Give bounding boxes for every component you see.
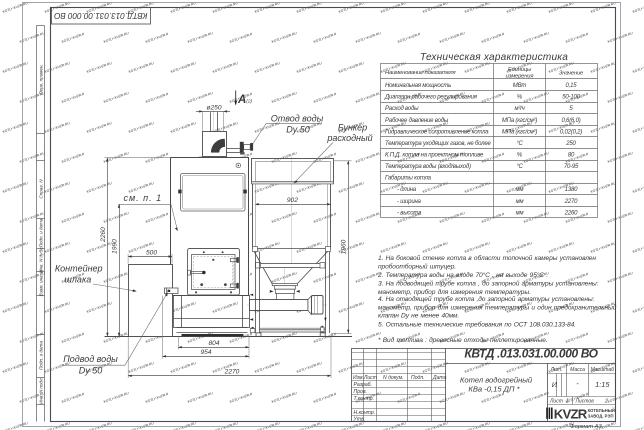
svg-text:Разраб.: Разраб. xyxy=(354,382,372,388)
svg-text:Листов: Листов xyxy=(575,398,595,404)
svg-text:Инв. N дубл.: Инв. N дубл. xyxy=(38,246,43,273)
svg-text:Техническая характеристика: Техническая характеристика xyxy=(420,52,568,63)
svg-text:1. На боковой стенке котла: 1. На боковой стенке котла в области топ… xyxy=(378,254,596,262)
svg-text:И: И xyxy=(552,380,558,389)
svg-text:2: 2 xyxy=(604,398,608,404)
svg-text:(2): (2) xyxy=(246,99,252,105)
svg-text:%: % xyxy=(517,153,523,159)
svg-text:мм: мм xyxy=(516,210,524,216)
svg-text:0,6(6,0): 0,6(6,0) xyxy=(561,118,580,124)
svg-text:0,15: 0,15 xyxy=(566,83,578,89)
svg-text:0,02(0,2): 0,02(0,2) xyxy=(560,129,582,135)
svg-text:1380: 1380 xyxy=(565,187,578,193)
svg-text:KVZR: KVZR xyxy=(554,406,588,421)
svg-text:1990: 1990 xyxy=(111,239,118,254)
svg-text:манометр, прибор для измере: манометр, прибор для измерения температу… xyxy=(378,304,617,312)
svg-text:Котел водогрейный: Котел водогрейный xyxy=(460,376,533,385)
svg-text:Пров.: Пров. xyxy=(354,389,367,395)
svg-text:5. Остальные технические т: 5. Остальные технические требования по О… xyxy=(378,320,576,328)
svg-text:МПа (кгс/см²): МПа (кгс/см²) xyxy=(502,129,537,135)
svg-text:Подвод воды: Подвод воды xyxy=(63,354,118,364)
svg-text:2. Температура воды на вх: 2. Температура воды на входе 70°С , на в… xyxy=(377,271,548,279)
svg-text:измерения: измерения xyxy=(506,74,534,80)
svg-text:м³/ч: м³/ч xyxy=(514,106,524,112)
svg-text:N докум.: N докум. xyxy=(383,375,404,381)
svg-text:МВт: МВт xyxy=(513,83,527,89)
svg-text:КВа -0,15 ДП *: КВа -0,15 ДП * xyxy=(468,385,520,394)
svg-text:Дата: Дата xyxy=(432,375,447,381)
svg-text:2270: 2270 xyxy=(224,368,240,375)
svg-text:Взам. инв. N: Взам. инв. N xyxy=(38,269,43,296)
svg-text:1:15: 1:15 xyxy=(595,380,610,389)
svg-text:Значение: Значение xyxy=(559,71,584,77)
svg-text:2270: 2270 xyxy=(564,199,578,205)
svg-text:4. На отводящей трубе кот: 4. На отводящей трубе котла ,до запорной… xyxy=(378,295,595,303)
svg-text:Лист: Лист xyxy=(549,398,563,404)
svg-text:Расход воды: Расход воды xyxy=(385,106,419,112)
svg-text:Масса: Масса xyxy=(570,367,585,373)
svg-text:клапан Dу не менее 40мм.: клапан Dу не менее 40мм. xyxy=(378,313,459,320)
svg-text:%: % xyxy=(517,95,523,101)
svg-text:МПа (кгс/см²): МПа (кгс/см²) xyxy=(502,118,537,124)
svg-text:2260: 2260 xyxy=(100,227,107,243)
svg-text:°С: °С xyxy=(516,164,523,170)
svg-text:954: 954 xyxy=(200,349,211,356)
svg-text:Т.контр.: Т.контр. xyxy=(354,396,375,402)
svg-text:- длина: - длина xyxy=(397,187,417,193)
svg-text:500: 500 xyxy=(146,249,157,256)
svg-text:Номинальная мощность: Номинальная мощность xyxy=(385,83,451,89)
svg-text:ø250: ø250 xyxy=(206,104,221,111)
svg-text:пробоотборный штуцер.: пробоотборный штуцер. xyxy=(378,263,456,271)
svg-text:Справ. N: Справ. N xyxy=(38,179,43,199)
svg-text:Рабочее давление воды: Рабочее давление воды xyxy=(385,118,449,124)
svg-text:расходный: расходный xyxy=(326,133,372,143)
svg-text:2260: 2260 xyxy=(564,210,578,216)
svg-text:ЗАВОД. РЭП: ЗАВОД. РЭП xyxy=(588,414,614,419)
svg-text:Диапазон рабочего регулировани: Диапазон рабочего регулирования xyxy=(384,95,478,101)
svg-text:мм: мм xyxy=(516,199,524,205)
svg-text:- ширина: - ширина xyxy=(397,199,422,205)
svg-text:Гидравлическое сопротивление к: Гидравлическое сопротивление котла xyxy=(385,129,489,135)
svg-text:манометр, прибор для измере: манометр, прибор для измерения температу… xyxy=(378,288,531,296)
svg-text:Подп. и дата: Подп. и дата xyxy=(38,218,43,247)
svg-text:Dy 50: Dy 50 xyxy=(286,124,310,134)
svg-text:Температура воды (вход/выход): Температура воды (вход/выход) xyxy=(385,164,471,170)
svg-text:1960: 1960 xyxy=(341,239,348,254)
svg-text:Подп.: Подп. xyxy=(411,375,425,381)
svg-text:70-95: 70-95 xyxy=(564,164,579,170)
svg-text:Температура уходящих газов, не: Температура уходящих газов, не более xyxy=(385,141,491,147)
svg-text:Бункер: Бункер xyxy=(338,123,367,133)
svg-text:804: 804 xyxy=(208,340,219,347)
svg-text:Подп. и дата: Подп. и дата xyxy=(38,341,43,370)
svg-text:* Вид топлива : древесные: * Вид топлива : древесные отходы пеллети… xyxy=(378,336,548,344)
svg-text:К.П.Д. котла на проектном топл: К.П.Д. котла на проектном топливе xyxy=(385,153,484,159)
svg-text:Наименование показателя: Наименование показателя xyxy=(385,70,456,76)
svg-text:Отвод воды: Отвод воды xyxy=(271,114,324,124)
svg-text:80: 80 xyxy=(568,153,575,159)
svg-text:Единицы: Единицы xyxy=(508,67,532,73)
svg-text:°С: °С xyxy=(516,141,523,147)
svg-text:902: 902 xyxy=(287,197,298,204)
svg-text:мм: мм xyxy=(516,187,524,193)
svg-text:Перв. примен.: Перв. примен. xyxy=(38,64,43,95)
svg-text:А: А xyxy=(237,94,246,106)
svg-text:3. На подводящей трубе ко: 3. На подводящей трубе котла , до запорн… xyxy=(378,280,599,288)
svg-text:50-100: 50-100 xyxy=(562,95,580,101)
svg-text:Изм.Лист: Изм.Лист xyxy=(353,375,377,381)
svg-text:Инв. N подл.: Инв. N подл. xyxy=(38,377,43,404)
svg-text:Габариты котла: Габариты котла xyxy=(385,176,432,182)
svg-text:- высота: - высота xyxy=(397,210,422,216)
svg-text:КВТД.013.031.00.000 ВО: КВТД.013.031.00.000 ВО xyxy=(53,11,147,20)
svg-text:Н.контр.: Н.контр. xyxy=(354,410,376,416)
svg-text:1: 1 xyxy=(566,398,569,404)
svg-text:Лит.: Лит. xyxy=(550,367,563,373)
svg-text:250: 250 xyxy=(565,141,576,147)
svg-text:Формат А3: Формат А3 xyxy=(570,424,602,430)
svg-text:КОТЕЛЬНЫЙ: КОТЕЛЬНЫЙ xyxy=(588,408,615,413)
svg-text:шлака: шлака xyxy=(64,275,91,285)
svg-text:Масштаб: Масштаб xyxy=(591,367,615,373)
svg-text:КВТД .013.031.00.000 ВО: КВТД .013.031.00.000 ВО xyxy=(464,347,598,361)
svg-text:Контейнер: Контейнер xyxy=(55,264,103,274)
svg-text:Утв.: Утв. xyxy=(354,417,366,423)
svg-text:см. п. 1: см. п. 1 xyxy=(123,193,162,203)
svg-text:Dy 50: Dy 50 xyxy=(79,366,103,376)
